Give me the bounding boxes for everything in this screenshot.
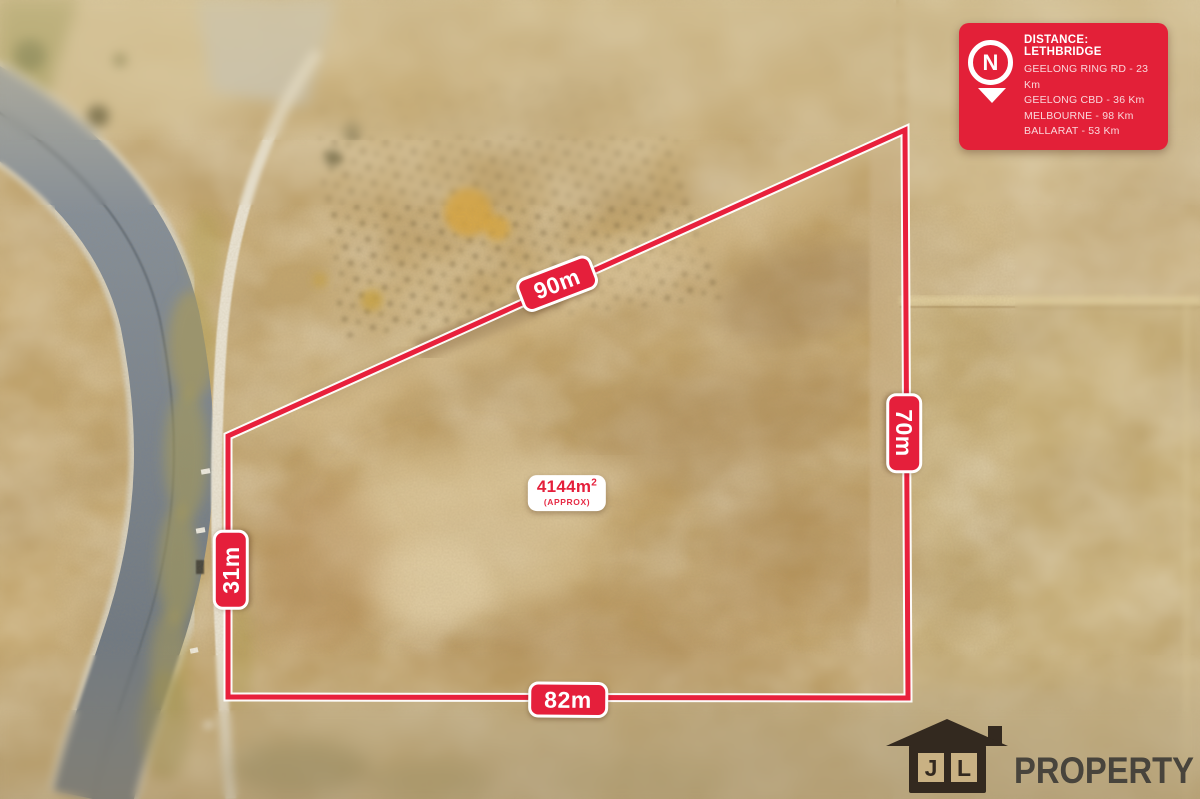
area-value: 4144m2	[537, 478, 597, 496]
north-pin-tail	[978, 88, 1006, 103]
dimension-label-bottom: 82m	[528, 681, 608, 718]
distance-card-title: DISTANCE: LETHBRIDGE	[1024, 34, 1158, 58]
distance-item: MELBOURNE - 98 Km	[1024, 109, 1158, 125]
distance-item: BALLARAT - 53 Km	[1024, 124, 1158, 140]
distance-item: GEELONG CBD - 36 Km	[1024, 93, 1158, 109]
logo-letter-l: L	[957, 755, 971, 781]
logo-wordmark: PROPERTY	[1014, 750, 1194, 791]
area-qualifier: (APPROX)	[537, 497, 597, 507]
house-icon	[886, 719, 1008, 793]
area-label: 4144m2 (APPROX)	[528, 475, 606, 511]
north-pin-circle: N	[968, 40, 1013, 85]
dimension-label-left: 31m	[213, 530, 249, 610]
distance-item: GEELONG RING RD - 23 Km	[1024, 62, 1158, 93]
agency-logo: J L PROPERTY	[884, 712, 1200, 798]
dimension-label-right: 70m	[886, 393, 922, 473]
north-pin-icon: N	[968, 33, 1015, 140]
logo-letter-j: J	[925, 755, 938, 781]
north-letter: N	[983, 52, 999, 74]
distance-card: N DISTANCE: LETHBRIDGE GEELONG RING RD -…	[959, 23, 1168, 150]
land-listing-aerial-view: 90m 70m 31m 82m 4144m2 (APPROX) N DISTAN…	[0, 0, 1200, 799]
